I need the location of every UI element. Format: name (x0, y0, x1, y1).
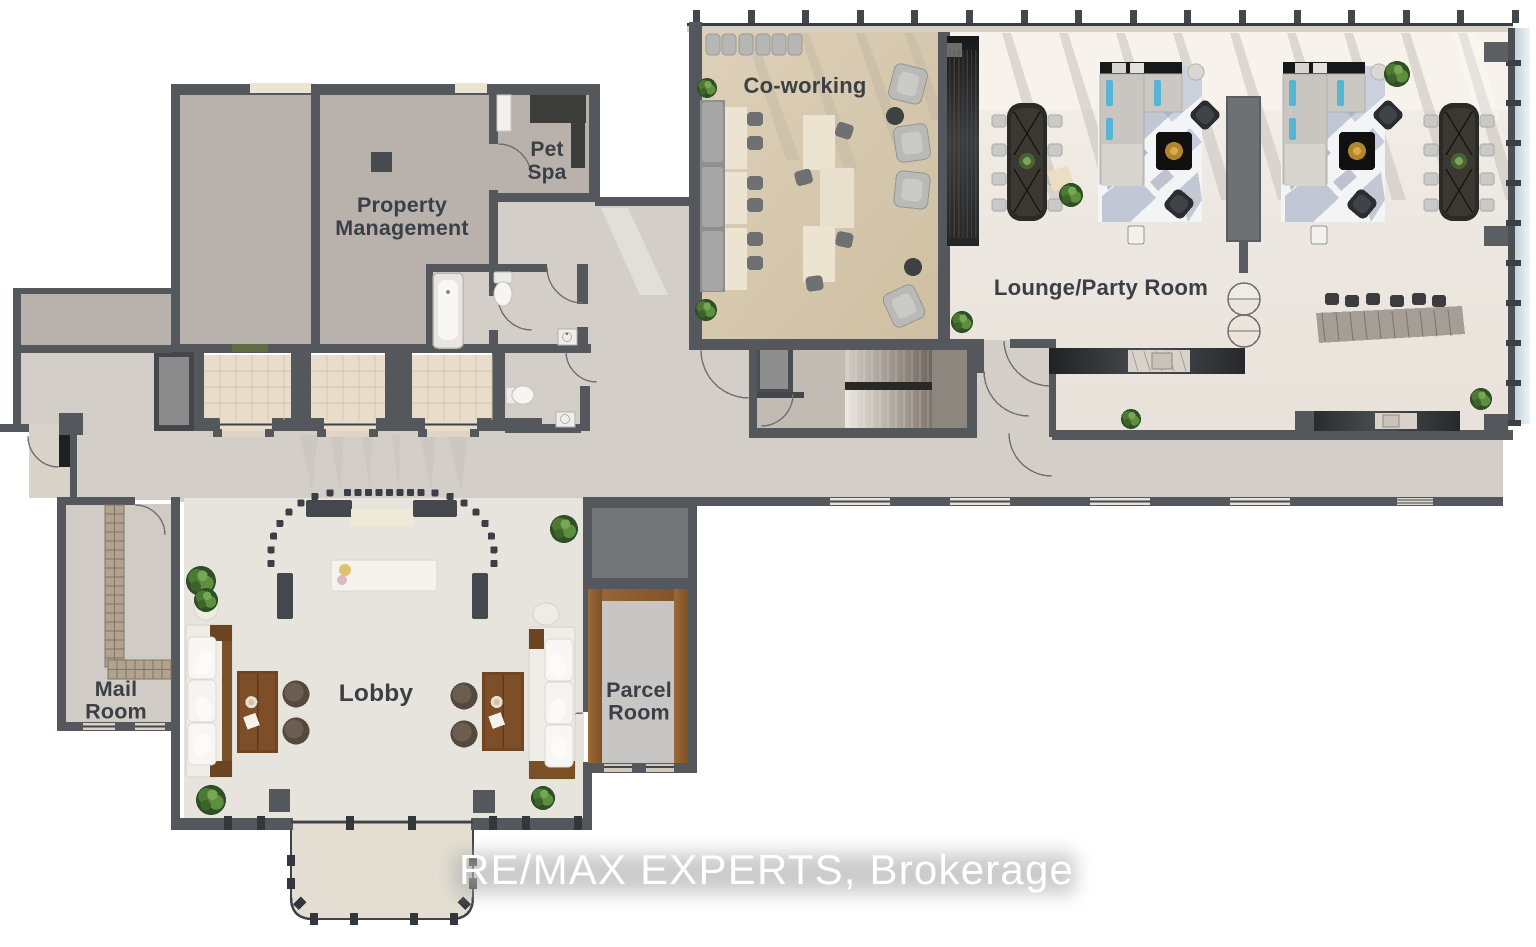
svg-text:Room: Room (85, 700, 147, 724)
svg-text:Pet: Pet (530, 138, 563, 161)
svg-text:Management: Management (335, 216, 468, 240)
svg-text:Lounge/Party Room: Lounge/Party Room (994, 275, 1208, 300)
svg-text:RE/MAX EXPERTS, Brokerage: RE/MAX EXPERTS, Brokerage (459, 846, 1074, 893)
svg-text:Lobby: Lobby (339, 680, 414, 707)
svg-text:Property: Property (357, 193, 447, 217)
svg-text:Mail: Mail (95, 677, 138, 701)
svg-text:Spa: Spa (527, 161, 566, 184)
svg-text:Co-working: Co-working (744, 73, 867, 98)
svg-text:Parcel: Parcel (606, 678, 672, 702)
svg-text:Room: Room (608, 701, 670, 725)
